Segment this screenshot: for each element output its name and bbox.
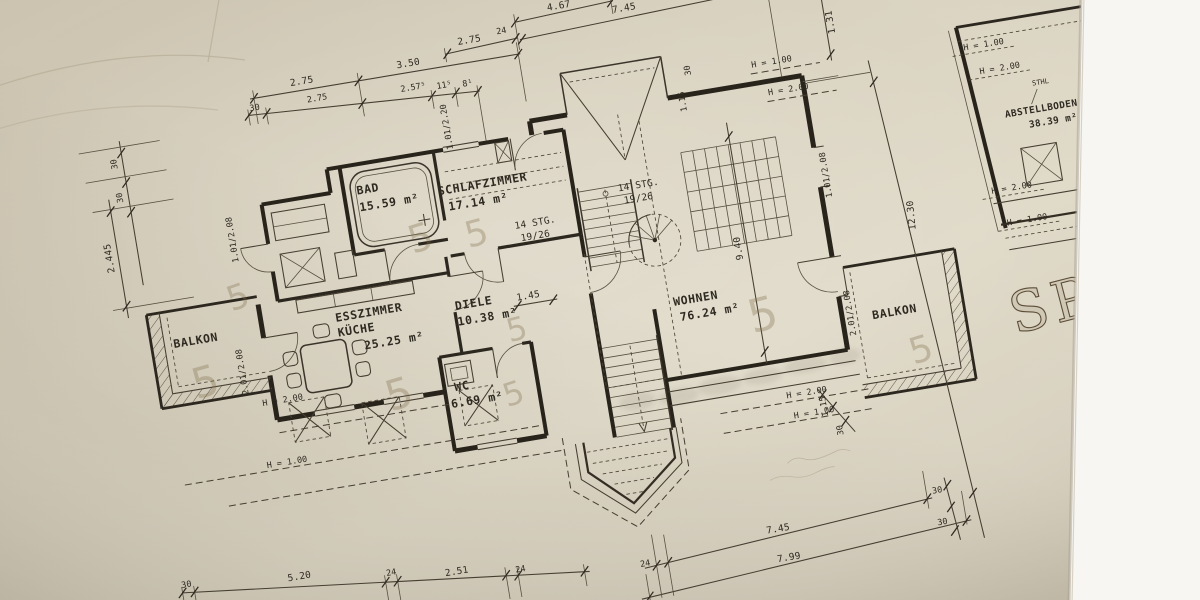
floor-plan-canvas: BAD 15.59 m² SCHLAFZIMMER 17.14 m² ESSZI… xyxy=(0,0,1200,600)
room-label-wc: WC xyxy=(453,378,470,394)
dim-br-24: 24 xyxy=(639,558,651,570)
dim-top2-30: 30 xyxy=(249,103,261,115)
dim-left-30b: 30 xyxy=(115,192,127,204)
dim-bl-30: 30 xyxy=(181,579,193,591)
dim-br-30a: 30 xyxy=(931,485,943,497)
dim-bl-24: 24 xyxy=(385,567,397,579)
paper-edge xyxy=(1069,0,1200,600)
floor-plan-photo: BAD 15.59 m² SCHLAFZIMMER 17.14 m² ESSZI… xyxy=(0,0,1200,600)
dim-30-top: 30 xyxy=(683,64,695,76)
dim-left-30a: 30 xyxy=(109,158,121,170)
dim-top3-24: 24 xyxy=(496,26,508,38)
dim-30-bottom-right: 30 xyxy=(835,424,847,436)
dim-br-30b: 30 xyxy=(937,517,949,529)
dim-bl-24b: 24 xyxy=(515,564,527,576)
dim-top2-81: 8¹ xyxy=(462,78,474,90)
